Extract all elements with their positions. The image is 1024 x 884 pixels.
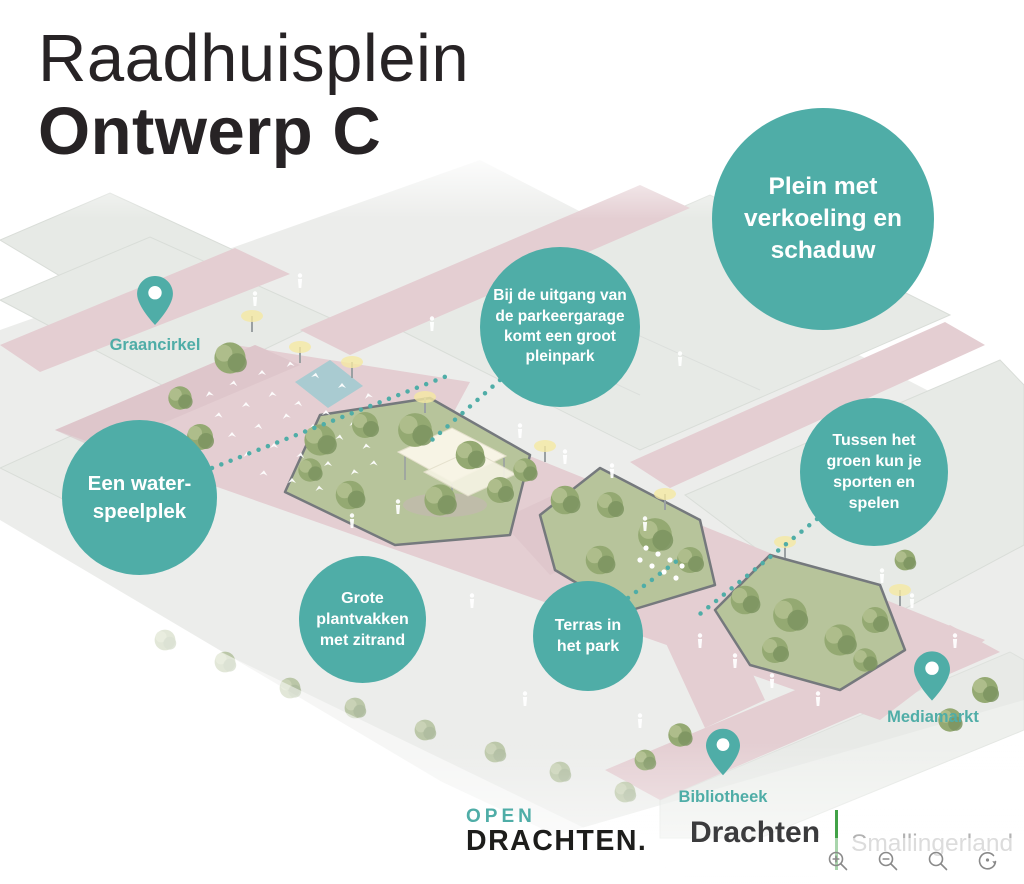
pin-label-graancirkel: Graancirkel (75, 336, 235, 355)
rotate-reset-icon (976, 849, 1000, 873)
callout-plantvakken: Grote plantvakken met zitrand (299, 556, 426, 683)
infographic-page: Raadhuisplein Ontwerp C Plein met verkoe… (0, 0, 1024, 884)
zoom-out-icon (876, 849, 900, 873)
callout-text: Terras in het park (543, 615, 633, 657)
callout-text: Tussen het groen kun je sporten en spele… (814, 430, 934, 514)
callout-text: Bij de uitgang van de parkeergarage komt… (491, 286, 629, 368)
zoom-in-icon (826, 849, 850, 873)
page-title: Raadhuisplein Ontwerp C (38, 22, 469, 168)
callout-uitgang-parkeergarage: Bij de uitgang van de parkeergarage komt… (480, 247, 640, 407)
zoom-out-button[interactable] (874, 847, 902, 875)
callout-text: Plein met verkoeling en schaduw (732, 171, 914, 268)
title-line-2: Ontwerp C (38, 95, 469, 168)
viewer-toolbar (818, 838, 1024, 884)
open-drachten-logo-top: OPEN (466, 807, 647, 827)
map-pin-icon (914, 650, 950, 702)
callout-text: Een water-speelplek (74, 470, 205, 524)
callout-text: Grote plantvakken met zitrand (305, 588, 420, 651)
search-icon (926, 849, 950, 873)
zoom-in-button[interactable] (824, 847, 852, 875)
callout-plein-met-verkoeling: Plein met verkoeling en schaduw (712, 108, 934, 330)
map-pin-icon (706, 727, 740, 777)
pin-label-bibliotheek: Bibliotheek (643, 788, 803, 807)
municipality-name: Drachten (690, 816, 820, 850)
title-line-1: Raadhuisplein (38, 22, 469, 95)
callout-waterspeelplek: Een water-speelplek (62, 420, 217, 575)
open-drachten-logo-bottom: DRACHTEN. (466, 827, 647, 857)
callout-tussen-het-groen: Tussen het groen kun je sporten en spele… (800, 398, 948, 546)
reset-view-button[interactable] (974, 847, 1002, 875)
pin-label-mediamarkt: Mediamarkt (853, 708, 1013, 727)
callout-terras: Terras in het park (533, 581, 643, 691)
search-button[interactable] (924, 847, 952, 875)
map-pin-icon (137, 276, 173, 325)
open-drachten-logo: OPEN DRACHTEN. (466, 807, 647, 857)
